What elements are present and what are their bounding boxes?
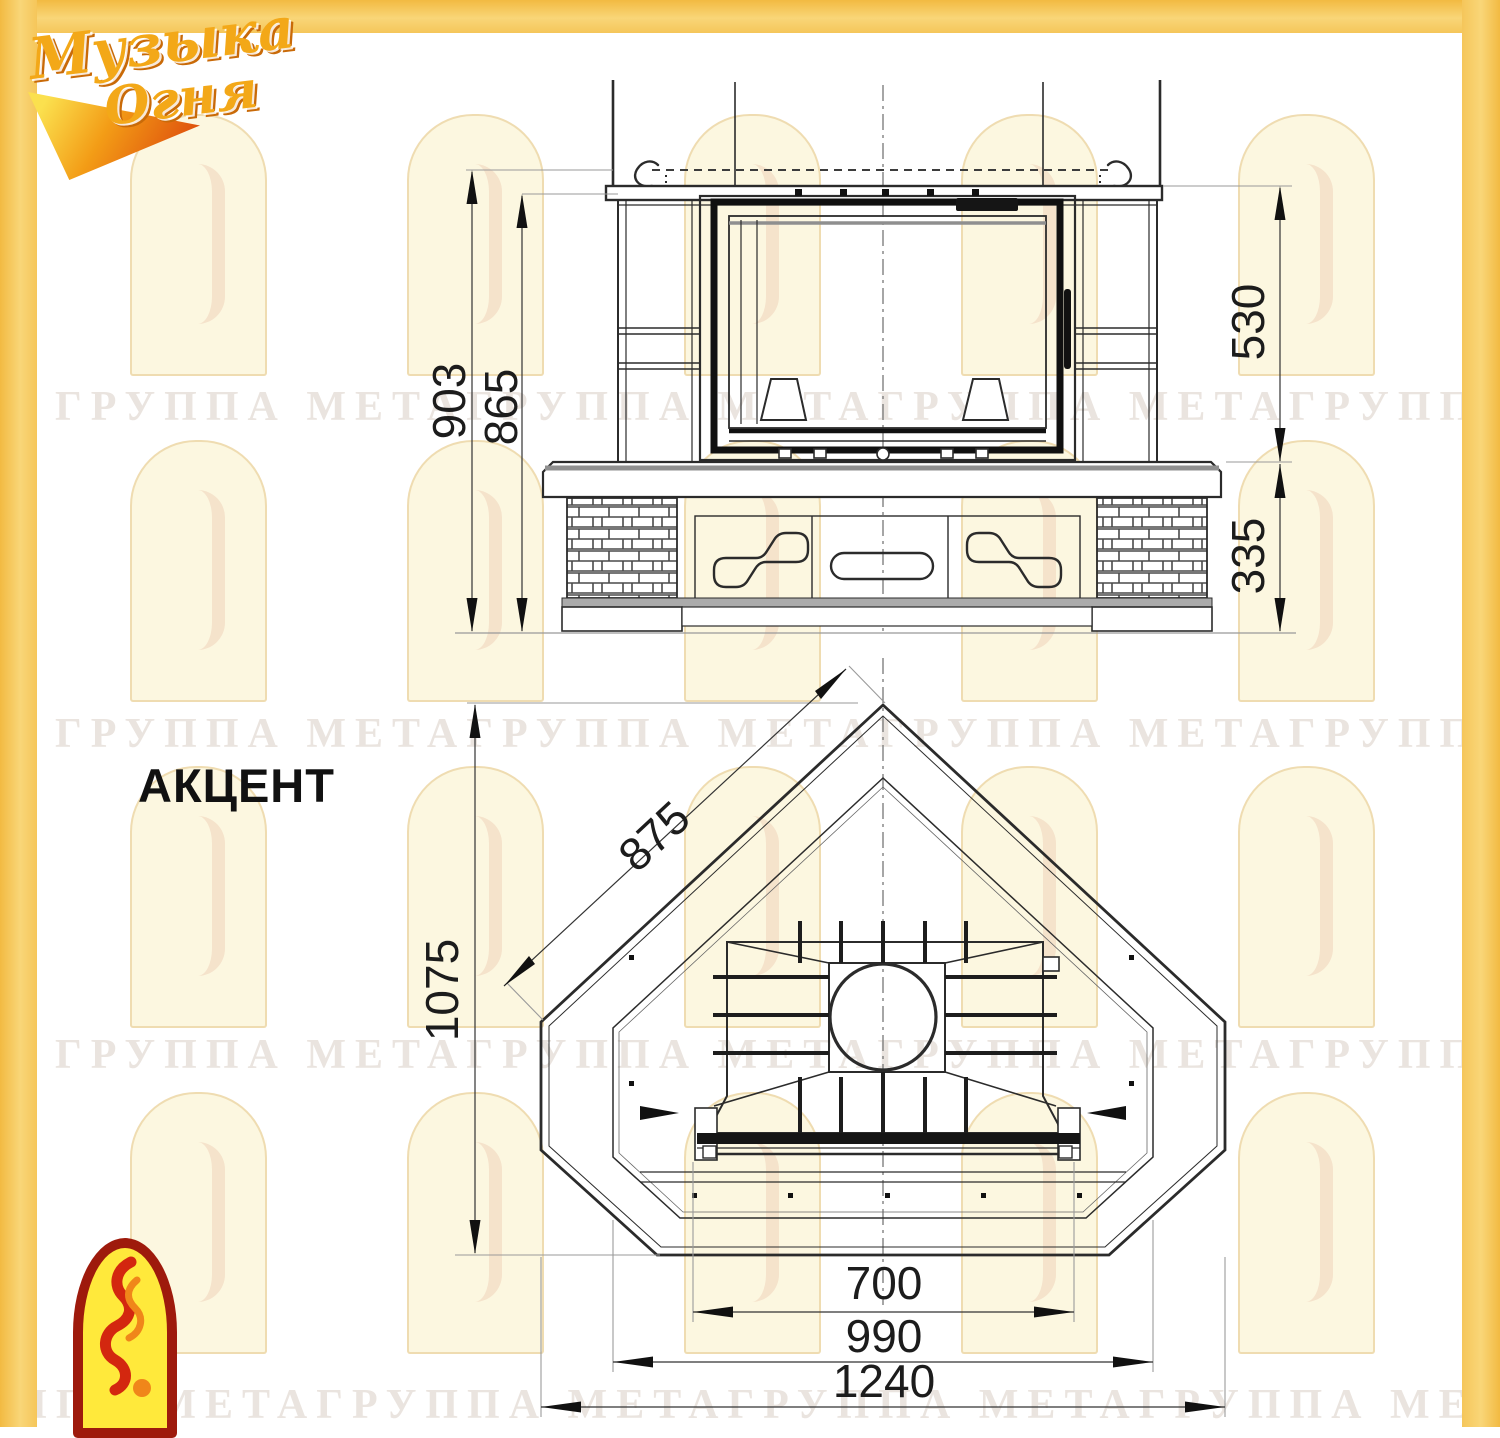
insert-brand-plate bbox=[956, 198, 1018, 211]
flame-figure-icon bbox=[85, 1254, 165, 1424]
plinth-base bbox=[562, 598, 1212, 631]
front-view bbox=[455, 80, 1296, 636]
pointer-arrow-right bbox=[1087, 1106, 1126, 1120]
fireplace-technical-drawing bbox=[0, 0, 1500, 1427]
brand-logo: Музыка Огня bbox=[8, 2, 288, 182]
damper-notch bbox=[1043, 957, 1059, 971]
dim-label-total-width: 1240 bbox=[804, 1354, 964, 1408]
dim-label-base-height: 335 bbox=[1221, 476, 1275, 636]
dim-label-total-height: 903 bbox=[422, 321, 476, 481]
decor-panel bbox=[695, 516, 1080, 600]
center-slot bbox=[831, 553, 933, 579]
ribs bbox=[713, 921, 1057, 1133]
pillar-left bbox=[618, 200, 700, 462]
brick-pier-right bbox=[1097, 498, 1207, 598]
dim-label-depth: 1075 bbox=[415, 910, 469, 1070]
pillar-right bbox=[1075, 200, 1157, 462]
glass-front-band bbox=[697, 1133, 1080, 1144]
s-scroll-right bbox=[967, 533, 1061, 587]
brick-pier-left bbox=[567, 498, 677, 598]
andiron-right bbox=[963, 379, 1008, 420]
bench-shelf bbox=[543, 462, 1221, 497]
dim-label-front-width: 700 bbox=[804, 1256, 964, 1310]
dim-label-firebox-height: 530 bbox=[1221, 242, 1275, 402]
front-extension-lines bbox=[466, 170, 1292, 462]
arch-logo bbox=[73, 1238, 177, 1438]
firebox-plan bbox=[710, 921, 1060, 1133]
door-handle bbox=[1064, 289, 1071, 369]
dim-label-mantel-height: 865 bbox=[474, 327, 528, 487]
s-scroll-left bbox=[714, 533, 808, 587]
model-title: АКЦЕНТ bbox=[138, 758, 335, 813]
firebox-insert bbox=[700, 189, 1075, 460]
pointer-arrow-left bbox=[640, 1106, 679, 1120]
andiron-left bbox=[761, 379, 806, 420]
